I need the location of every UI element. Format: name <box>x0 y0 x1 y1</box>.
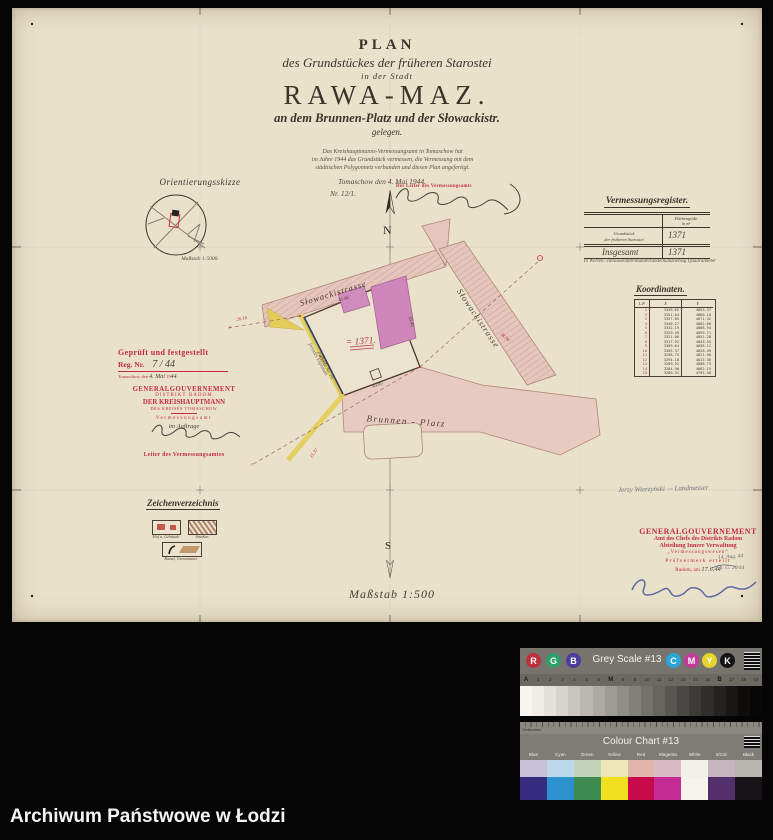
grey-step <box>593 686 605 716</box>
colour-dot-m: M <box>684 653 699 668</box>
grey-step <box>617 686 629 716</box>
colour-dot-r: R <box>526 653 541 668</box>
patch-light <box>654 760 681 777</box>
grey-tick: 9 <box>629 674 641 686</box>
colour-dot-y: Y <box>702 653 717 668</box>
grey-step <box>677 686 689 716</box>
grey-scale-title: Grey Scale #13 <box>584 654 670 665</box>
patch-full <box>601 777 628 800</box>
patch-full <box>681 777 708 800</box>
reg-number-row: Reg. Nr. 7 / 44 <box>118 357 228 372</box>
grey-step <box>689 686 701 716</box>
signer-title: Leiter des Vermessungsamtes <box>118 452 250 458</box>
grey-tick: B <box>714 674 726 686</box>
grey-step <box>580 686 592 716</box>
patch-light <box>628 760 655 777</box>
register-col-header: Flächengrößein m² <box>664 216 708 226</box>
plan-title: PLAN <box>12 37 762 54</box>
measurement-label: 26.10 <box>236 316 248 323</box>
grey-step <box>738 686 750 716</box>
colour-label-black: Black <box>735 750 762 760</box>
grey-tick: 3 <box>556 674 568 686</box>
grey-tick: 8 <box>617 674 629 686</box>
coordinates-title: Koordinaten. <box>634 284 687 296</box>
grey-tick: 5 <box>580 674 592 686</box>
colour-label-blue: Blue <box>520 750 547 760</box>
grey-step <box>568 686 580 716</box>
legend-label-canal: Kanal, Grenzmauer <box>154 556 208 561</box>
patch-light <box>547 760 574 777</box>
legend-block: Zeichenverzeichnis Hof u. Gebäude Straße… <box>146 498 266 510</box>
patch-full <box>547 777 574 800</box>
colour-chart: Centimetres Colour Chart #13 BlueCyanGre… <box>520 722 762 800</box>
patch-light <box>681 760 708 777</box>
scanned-plan-page: Słowackistrasse Słowackistrasse Brunnen … <box>0 0 773 840</box>
grey-step <box>556 686 568 716</box>
approval-stamp: Geprüft und festgestellt Reg. Nr. 7 / 44… <box>118 348 250 458</box>
grey-tick: 2 <box>544 674 556 686</box>
colour-label-red: Red <box>628 750 655 760</box>
handwritten-ref-note: Nb. G. 20/44 <box>716 565 744 571</box>
grey-tick: 1 <box>532 674 544 686</box>
grey-tick: 19 <box>750 674 762 686</box>
radom-line-3: Abteilung Innere Verwaltung <box>628 542 768 549</box>
radom-line-4: „Vermessungswesen“ <box>628 550 768 555</box>
patch-light <box>601 760 628 777</box>
grey-tick: 13 <box>677 674 689 686</box>
colour-row-full <box>520 777 762 800</box>
stamp-date-row: Tomaschow, den 4. Mai 1944 <box>118 374 250 380</box>
patch-full <box>708 777 735 800</box>
office-label: Vermessungsamt <box>118 416 250 421</box>
grey-scale-bar: Grey Scale #13 RGBCMYK A123456M891011121… <box>520 648 762 716</box>
org-line-2: DISTRIKT RADOM <box>118 393 250 398</box>
patch-full <box>628 777 655 800</box>
koordinaten-body: 13349.624853.3723351.044860.1833357.8548… <box>635 308 715 376</box>
survey-point-mark <box>538 256 543 261</box>
grey-step <box>726 686 738 716</box>
patch-full <box>520 777 547 800</box>
patch-full <box>574 777 601 800</box>
coordinates-table: L.P. X Y 13349.624853.3723351.044860.183… <box>634 299 716 377</box>
legend-swatch-streets <box>188 520 217 535</box>
approval-title: Geprüft und festgestellt <box>118 348 250 357</box>
colour-chart-header: Colour Chart #13 <box>520 734 762 750</box>
main-scale-label: Maßstab 1:500 <box>307 587 477 602</box>
grey-step <box>605 686 617 716</box>
north-label: N <box>383 223 392 237</box>
orientation-sketch <box>146 195 206 255</box>
register-row1-value: 1371 <box>668 230 686 240</box>
ruler-strip: Centimetres <box>520 722 762 734</box>
org-line-1: GENERALGOUVERNEMENT <box>118 386 250 393</box>
boundary-point <box>419 366 421 368</box>
grey-scale-header: Grey Scale #13 RGBCMYK <box>520 648 762 674</box>
grey-step <box>641 686 653 716</box>
reg-number-value: 7 / 44 <box>152 359 175 370</box>
org-line-3: DER KREISHAUPTMANN <box>118 399 250 406</box>
colour-dot-c: C <box>666 653 681 668</box>
certification-paragraph: Das Kreishauptmanns-Vermessungsamt in To… <box>290 148 495 172</box>
by-order-label: im Auftrage <box>118 423 250 430</box>
grey-tick: 12 <box>665 674 677 686</box>
orientation-title: Orientierungsskizze <box>140 177 260 187</box>
colour-label-yellow: Yellow <box>601 750 628 760</box>
kodak-logo-patch <box>744 652 760 670</box>
org-line-4: DES KREISES TOMASCHOW <box>118 406 250 411</box>
leader-stamp: Der Leiter des Vermessungsamts <box>396 184 472 189</box>
colour-label-green: Green <box>574 750 601 760</box>
colour-chart-title: Colour Chart #13 <box>520 736 762 747</box>
grey-tick: M <box>605 674 617 686</box>
colour-labels-row: BlueCyanGreenYellowRedMagentaWhite3/Col.… <box>520 750 762 760</box>
measurement-label: 15.37 <box>309 447 320 459</box>
grey-tick: 10 <box>641 674 653 686</box>
colour-dot-k: K <box>720 653 735 668</box>
grey-tick: 6 <box>593 674 605 686</box>
legend-label-streets: Straßen <box>188 534 216 539</box>
register-title: Vermessungsregister. <box>604 196 691 208</box>
measurement-label: × <box>250 463 253 468</box>
grey-step <box>544 686 556 716</box>
patch-light <box>735 760 762 777</box>
patch-full <box>654 777 681 800</box>
radom-date-row: Radom, am 17.6.44 <box>628 566 768 573</box>
colour-label-col: 3/Col. <box>708 750 735 760</box>
boundary-point <box>299 315 301 317</box>
patch-light <box>574 760 601 777</box>
legend-title: Zeichenverzeichnis <box>146 498 220 510</box>
coordinates-header: L.P. X Y <box>635 300 715 308</box>
grey-step <box>532 686 544 716</box>
patch-light <box>520 760 547 777</box>
plan-subtitle-4: gelegen. <box>12 127 762 137</box>
grey-tick: 15 <box>701 674 713 686</box>
legend-swatch-buildings <box>152 520 181 535</box>
signature-surveyor <box>396 189 508 210</box>
colour-row-light <box>520 760 762 777</box>
radom-stamp: GENERALGOUVERNEMENT Amt des Chefs des Di… <box>628 527 768 573</box>
grey-step <box>665 686 677 716</box>
grey-scale-gradient <box>520 686 762 716</box>
colour-label-white: White <box>681 750 708 760</box>
grey-scale-ticks: A123456M89101112131415B171819 <box>520 674 762 686</box>
register-total-label: Insgesamt <box>602 247 639 257</box>
register-total-value: 1371 <box>668 247 686 257</box>
grey-step <box>750 686 762 716</box>
grey-step <box>714 686 726 716</box>
colour-label-cyan: Cyan <box>547 750 574 760</box>
plan-subtitle-3: an dem Brunnen-Platz und der Słowackistr… <box>12 111 762 126</box>
grey-tick: 18 <box>738 674 750 686</box>
colour-label-magenta: Magenta <box>654 750 681 760</box>
ruler-label: Centimetres <box>522 728 541 732</box>
survey-register: Vermessungsregister. Flächengrößein m² G… <box>584 196 710 259</box>
grey-tick: 11 <box>653 674 665 686</box>
cert-number: Nr. 12/1. <box>330 189 356 198</box>
city-name: RAWA-MAZ. <box>12 80 762 111</box>
grey-step <box>520 686 532 716</box>
legend-label-buildings: Hof u. Gebäude <box>148 534 184 539</box>
grey-tick: 17 <box>726 674 738 686</box>
coordinates-block: Koordinaten. L.P. X Y 13349.624853.37233… <box>634 284 716 377</box>
colour-dot-g: G <box>546 653 561 668</box>
legend-swatch-canal <box>162 542 202 557</box>
plan-sheet: Słowackistrasse Słowackistrasse Brunnen … <box>12 8 762 622</box>
grey-step <box>653 686 665 716</box>
signature-blue <box>632 580 756 597</box>
cert-line-1: Das Kreishauptmanns-Vermessungsamt in To… <box>290 148 495 156</box>
radom-line-1: GENERALGOUVERNEMENT <box>628 527 768 536</box>
kodak-logo-patch <box>744 736 760 748</box>
colour-dot-b: B <box>566 653 581 668</box>
register-row1-label: Grundstückder früheren Starostei <box>588 231 660 242</box>
grey-step <box>629 686 641 716</box>
grey-tick: 14 <box>689 674 701 686</box>
radom-line-5: Prüfvermerk erteilt <box>628 558 768 564</box>
grey-step <box>701 686 713 716</box>
measurement-label: × <box>228 326 231 331</box>
grey-tick: 4 <box>568 674 580 686</box>
south-label: S <box>385 540 391 552</box>
cert-line-3: städtischen Polygonnetz verbunden und di… <box>290 164 495 172</box>
register-in-words: In Worten: eintausenddreihundertundeinun… <box>565 259 735 264</box>
cert-line-2: im Jahre 1944 das Grundstück vermessen, … <box>290 156 495 164</box>
coordinates-row: 153280.314795.58 <box>635 371 715 376</box>
archive-caption: Archiwum Państwowe w Łodzi <box>10 806 286 828</box>
patch-light <box>708 760 735 777</box>
orientation-scale: Maßstab 1:5000. <box>140 256 260 262</box>
plan-subtitle-1: des Grundstückes der früheren Starostei <box>12 55 762 71</box>
register-table: Flächengrößein m² Grundstückder früheren… <box>584 212 710 259</box>
patch-full <box>735 777 762 800</box>
grey-tick: A <box>520 674 532 686</box>
